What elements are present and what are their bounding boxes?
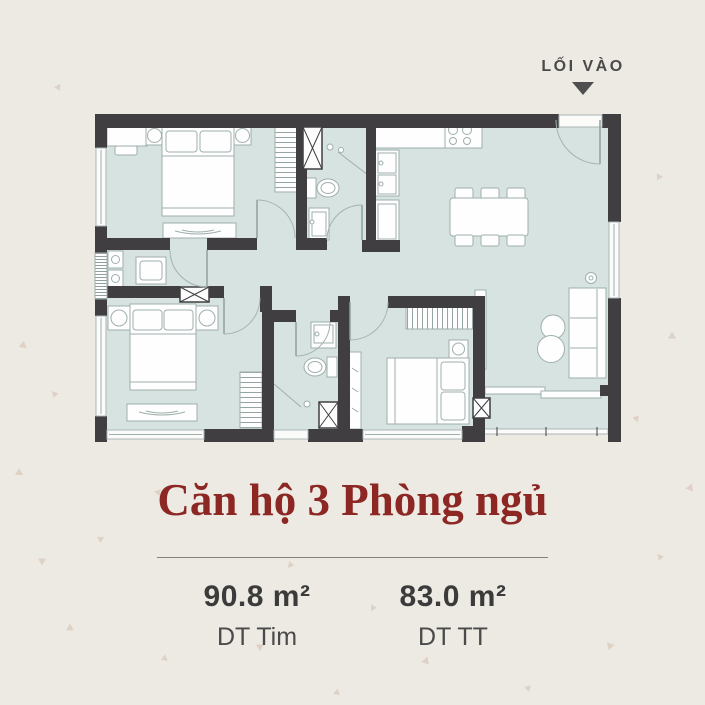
chair-icon xyxy=(507,235,525,246)
appliance-icon xyxy=(108,270,123,287)
sink-icon xyxy=(311,322,336,348)
shaft-icon xyxy=(180,287,209,302)
faucet-icon xyxy=(327,144,333,150)
tv-cabinet-icon xyxy=(349,352,361,429)
fridge-icon xyxy=(375,200,399,243)
coffee-table-icon xyxy=(538,336,565,363)
sliding-door-icon xyxy=(541,391,601,398)
double-bed-icon xyxy=(130,304,196,390)
desk-chair-icon xyxy=(115,146,137,155)
title-divider xyxy=(157,557,548,558)
entrance-label-text: LỐI VÀO xyxy=(503,58,663,76)
plan-title: Căn hộ 3 Phòng ngủ xyxy=(0,474,705,526)
chair-icon xyxy=(455,188,473,199)
kitchen-sink-icon xyxy=(375,150,399,196)
shaft-icon xyxy=(473,398,490,418)
toilet-icon xyxy=(306,178,339,198)
area-stat: 90.8 m² DT Tim xyxy=(157,580,357,652)
chair-icon xyxy=(507,188,525,199)
entrance-threshold xyxy=(559,115,602,127)
double-bed-icon xyxy=(162,126,234,216)
page: LỐI VÀO Căn hộ 3 Phòng ngủ 90.8 m² DT Ti… xyxy=(0,0,705,705)
area-stat: 83.0 m² DT TT xyxy=(353,580,553,652)
double-bed-icon xyxy=(387,358,469,424)
shaft-icon xyxy=(319,402,338,428)
area-value: 90.8 m² xyxy=(157,580,357,614)
appliance-icon xyxy=(108,251,123,268)
toilet-icon xyxy=(304,357,337,377)
dresser-icon xyxy=(163,223,236,238)
sink-icon xyxy=(309,208,329,240)
area-label: DT TT xyxy=(353,623,553,652)
entrance-label: LỐI VÀO xyxy=(503,58,663,95)
chair-icon xyxy=(455,235,473,246)
window xyxy=(274,430,308,439)
shower-head-icon xyxy=(304,401,310,407)
dining-set xyxy=(450,188,528,246)
shower-head-icon xyxy=(339,148,344,153)
dining-table-icon xyxy=(450,198,528,236)
chair-icon xyxy=(481,235,499,246)
area-value: 83.0 m² xyxy=(353,580,553,614)
chair-icon xyxy=(481,188,499,199)
entrance-arrow-icon xyxy=(572,82,594,95)
lamp-icon xyxy=(586,273,597,284)
washing-machine-icon xyxy=(136,257,166,284)
wardrobe-icon xyxy=(240,372,262,428)
sofa-icon xyxy=(569,288,606,378)
louver-window xyxy=(95,253,107,299)
sliding-door-icon xyxy=(485,387,545,394)
area-label: DT Tim xyxy=(157,623,357,652)
dresser-icon xyxy=(127,404,197,421)
shaft-icon xyxy=(303,127,322,169)
